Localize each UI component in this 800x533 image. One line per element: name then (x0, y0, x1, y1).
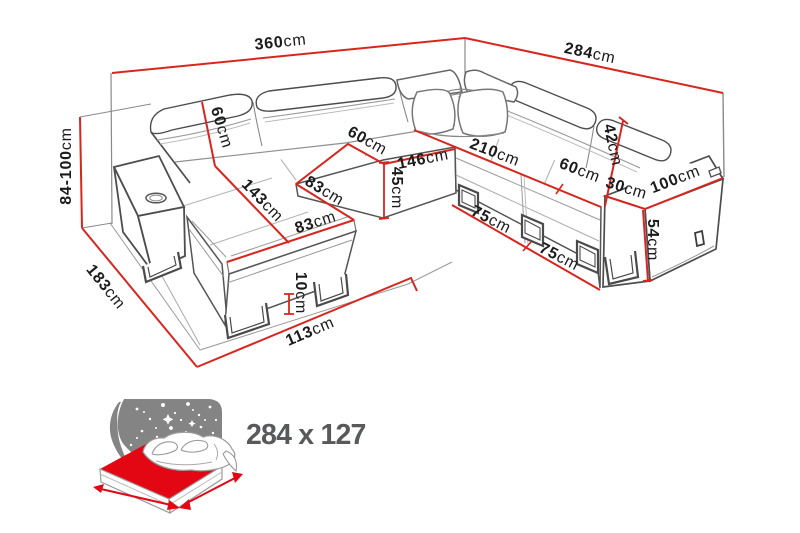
svg-text:10cm: 10cm (292, 272, 309, 314)
svg-text:45cm: 45cm (388, 167, 405, 209)
svg-text:54cm: 54cm (644, 219, 661, 261)
svg-text:84-100cm: 84-100cm (58, 127, 75, 205)
svg-text:284 x 127: 284 x 127 (246, 419, 366, 451)
